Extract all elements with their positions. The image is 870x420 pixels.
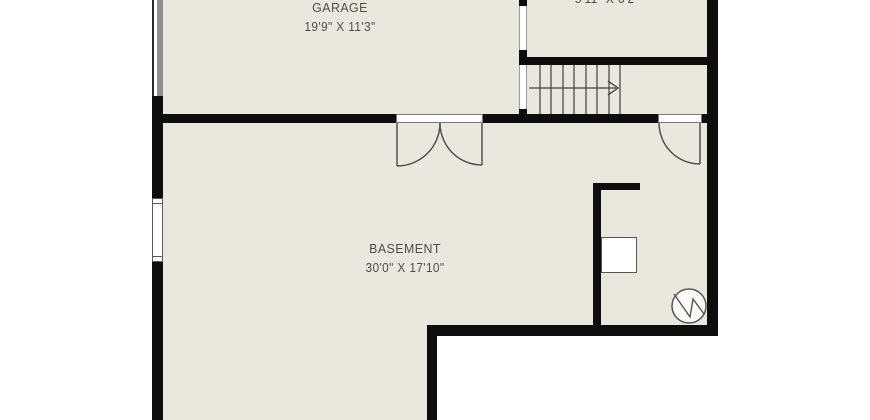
garage-dimensions: 19'9" X 11'3": [304, 20, 375, 34]
garage-door-panel: [157, 0, 163, 96]
wall-partition-vertical: [593, 183, 601, 325]
wall-lower-left-vertical: [427, 325, 437, 420]
basement-floor-plan: GARAGE 19'9" X 11'3" 5'11" X 6'2" BASEME…: [0, 0, 870, 420]
wall-divider-left-segment: [152, 114, 396, 123]
wall-divider-right-segment: [702, 114, 718, 123]
basement-name: BASEMENT: [365, 242, 444, 256]
staircase: [527, 65, 707, 114]
floor-lower-left: [163, 325, 427, 420]
garage-label: GARAGE 19'9" X 11'3": [304, 1, 375, 34]
garage-name: GARAGE: [304, 1, 375, 15]
floor-main: [163, 0, 707, 325]
furnace-box-icon: [601, 237, 637, 273]
wall-bottom: [427, 325, 718, 336]
wall-right: [707, 0, 718, 336]
stair-direction-arrow-icon: [529, 81, 618, 95]
stair-treads: [540, 65, 620, 114]
top-right-room-dimensions: 5'11" X 6'2": [575, 0, 639, 6]
window-tick-bottom: [153, 256, 162, 257]
single-door-threshold: [658, 114, 702, 123]
window-tick-top: [153, 203, 162, 204]
wall-divider-middle-segment: [483, 114, 658, 123]
wall-partition-stub: [593, 183, 640, 190]
wall-garage-right-bottom: [519, 109, 527, 123]
basement-dimensions: 30'0" X 17'10": [365, 261, 444, 275]
door-opening-stair-hall: [519, 65, 527, 109]
wall-top-room-bottom: [519, 57, 707, 65]
window: [152, 198, 163, 262]
garage-door: [152, 0, 163, 96]
door-opening-top-room: [519, 6, 527, 50]
top-right-room-label: 5'11" X 6'2": [575, 0, 639, 6]
basement-label: BASEMENT 30'0" X 17'10": [365, 242, 444, 275]
double-door-threshold: [396, 114, 483, 123]
